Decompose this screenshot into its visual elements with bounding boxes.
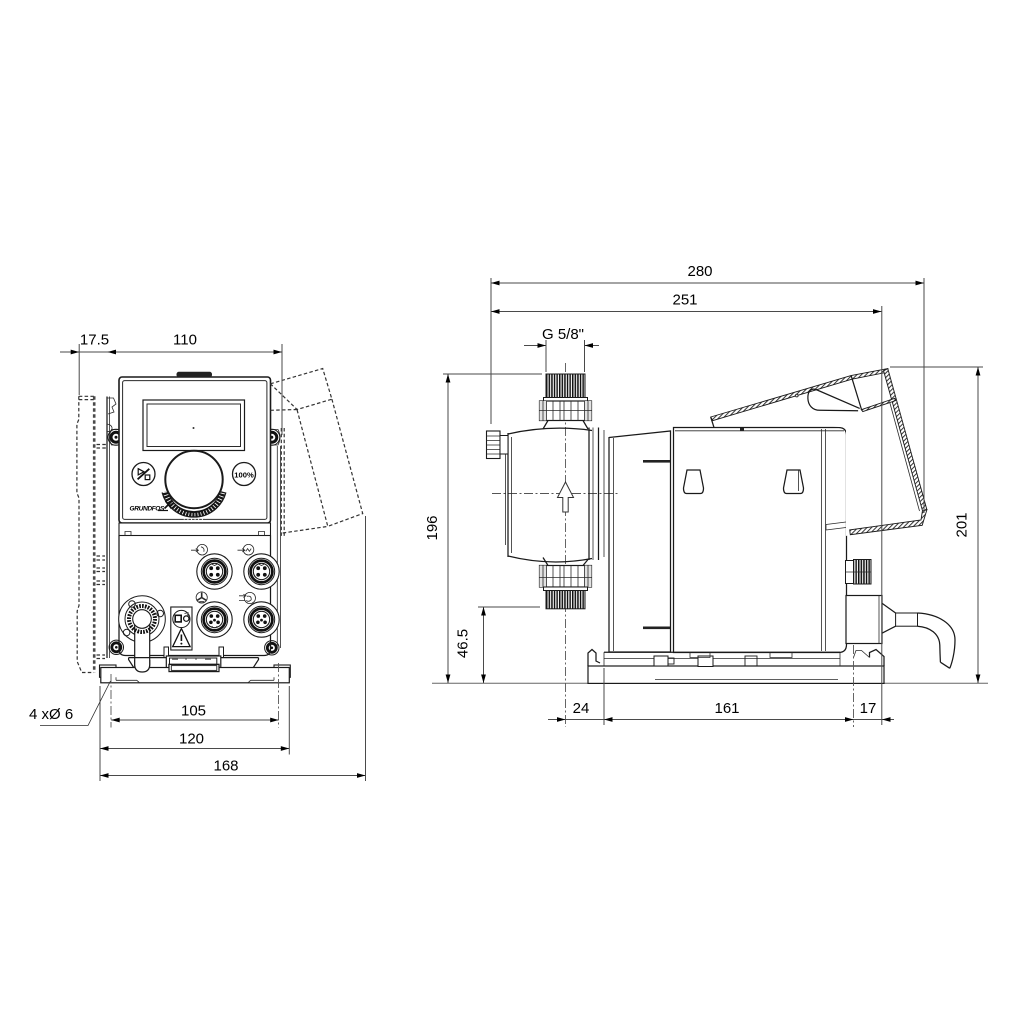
svg-text:168: 168 bbox=[213, 758, 238, 775]
svg-text:161: 161 bbox=[714, 700, 739, 717]
svg-text:120: 120 bbox=[179, 731, 204, 748]
svg-text:4 xØ 6: 4 xØ 6 bbox=[29, 706, 73, 723]
svg-text:110: 110 bbox=[173, 332, 197, 349]
svg-text:G 5/8": G 5/8" bbox=[542, 326, 584, 343]
svg-text:280: 280 bbox=[687, 263, 712, 280]
svg-text:GRUNDFOS: GRUNDFOS bbox=[130, 506, 166, 513]
svg-text:24: 24 bbox=[573, 700, 590, 717]
svg-text:251: 251 bbox=[672, 292, 697, 309]
svg-text:201: 201 bbox=[954, 512, 971, 537]
svg-text:196: 196 bbox=[424, 515, 441, 540]
svg-text:17: 17 bbox=[860, 700, 877, 717]
svg-text:100%: 100% bbox=[234, 470, 254, 479]
svg-text:105: 105 bbox=[181, 703, 206, 720]
svg-text:46.5: 46.5 bbox=[455, 629, 472, 658]
svg-text:17.5: 17.5 bbox=[80, 332, 109, 349]
